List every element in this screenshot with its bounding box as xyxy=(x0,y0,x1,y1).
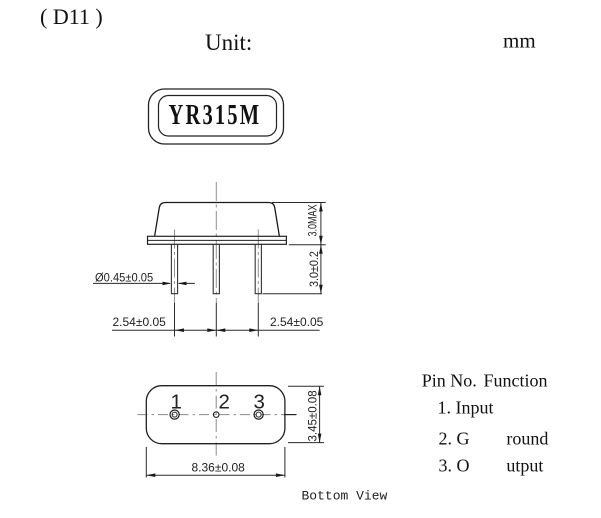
svg-text:2: 2 xyxy=(219,391,230,414)
svg-text:3: 3 xyxy=(254,391,265,414)
svg-text:Bottom View: Bottom View xyxy=(302,489,388,504)
svg-text:YR315M: YR315M xyxy=(169,100,262,131)
svg-text:3. O: 3. O xyxy=(439,456,470,476)
svg-text:utput: utput xyxy=(506,456,543,476)
svg-text:( D11 ): ( D11 ) xyxy=(40,4,103,29)
svg-text:2.54±0.05: 2.54±0.05 xyxy=(113,315,167,329)
svg-text:Unit:: Unit: xyxy=(205,30,252,55)
svg-text:2. G: 2. G xyxy=(439,429,470,449)
svg-text:2.54±0.05: 2.54±0.05 xyxy=(270,315,324,329)
svg-text:mm: mm xyxy=(503,29,536,53)
svg-text:round: round xyxy=(506,429,548,449)
svg-text:3.0±0.2: 3.0±0.2 xyxy=(309,251,322,287)
svg-text:3.0MAX: 3.0MAX xyxy=(306,205,320,237)
svg-text:Pin No.: Pin No. xyxy=(422,371,477,391)
svg-text:Ø0.45±0.05: Ø0.45±0.05 xyxy=(95,272,153,284)
svg-text:3.45±0.08: 3.45±0.08 xyxy=(306,390,319,442)
svg-text:Function: Function xyxy=(484,371,548,391)
svg-text:1. Input: 1. Input xyxy=(438,398,494,418)
svg-text:8.36±0.08: 8.36±0.08 xyxy=(192,461,246,475)
svg-text:1: 1 xyxy=(171,391,182,414)
